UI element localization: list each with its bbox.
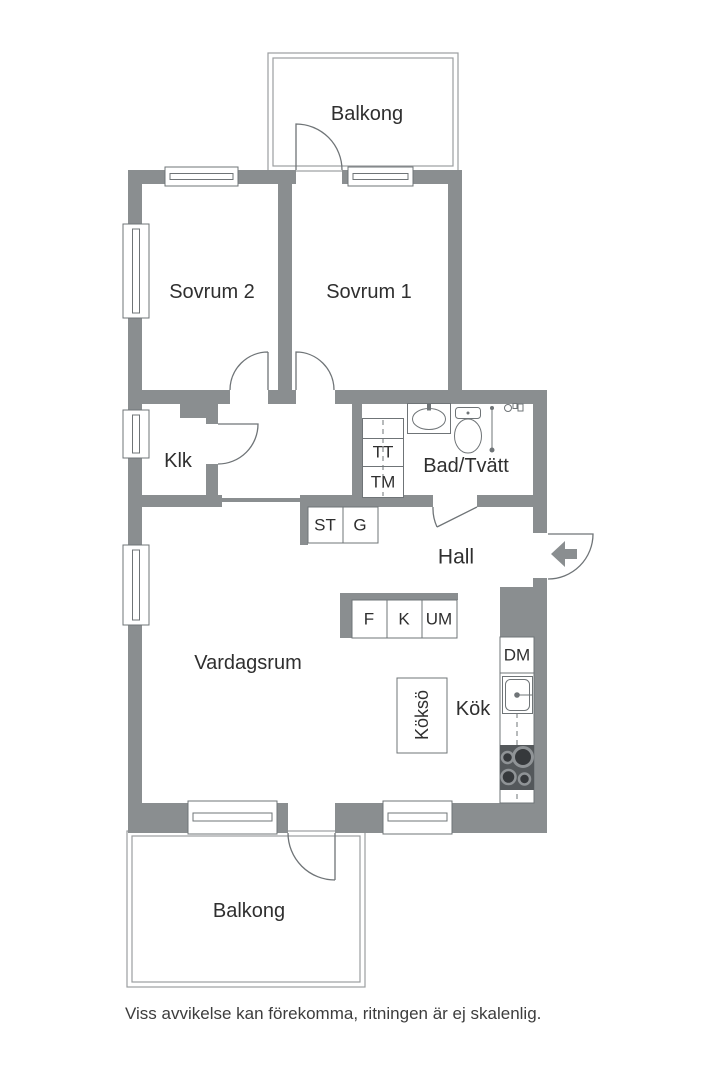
room-label-balkong-top: Balkong	[331, 104, 403, 124]
label-tumble-dryer: TT	[373, 444, 394, 461]
sovrum2-door	[230, 352, 268, 390]
kitchen-sink-icon	[503, 677, 534, 714]
floor-plan-drawing	[0, 0, 720, 1080]
room-label-sovrum-2: Sovrum 2	[169, 282, 255, 302]
window-klk-left	[123, 410, 149, 458]
room-label-klk: Klk	[164, 451, 192, 471]
room-label-kok: Kök	[456, 699, 490, 719]
mixer-icon	[505, 404, 524, 412]
passage-threshold	[222, 498, 300, 502]
room-label-balkong-bottom: Balkong	[213, 901, 285, 921]
room-label-vardagsrum: Vardagsrum	[194, 653, 301, 673]
label-fridge: F	[364, 611, 374, 628]
entrance-arrow-icon	[551, 541, 577, 567]
floor-plan-page: Balkong Sovrum 2 Sovrum 1 Klk Bad/Tvätt …	[0, 0, 720, 1080]
toilet-icon	[455, 408, 482, 454]
bathroom-fixtures	[408, 404, 524, 454]
room-label-sovrum-1: Sovrum 1	[326, 282, 412, 302]
window-vardagsrum-bottom	[188, 801, 277, 834]
label-dishwasher: DM	[504, 647, 530, 664]
disclaimer-text: Viss avvikelse kan förekomma, ritningen …	[125, 1004, 541, 1024]
bathroom-door	[433, 507, 477, 527]
shower-icon	[490, 406, 495, 453]
window-sovrum1-top	[348, 167, 413, 186]
walls	[128, 170, 547, 833]
window-vardagsrum-left	[123, 545, 149, 625]
sink-icon	[408, 404, 451, 434]
label-washing-machine: TM	[371, 474, 396, 491]
label-freezer: K	[398, 611, 409, 628]
window-kok-bottom	[383, 801, 452, 834]
room-label-hall: Hall	[438, 547, 474, 568]
window-sovrum2-top	[165, 167, 238, 186]
sovrum1-door	[296, 352, 334, 390]
label-cleaning-closet: ST	[314, 517, 336, 534]
window-sovrum2-left	[123, 224, 149, 318]
room-label-bad-tvatt: Bad/Tvätt	[423, 456, 509, 476]
label-wardrobe: G	[353, 517, 366, 534]
klk-door	[218, 424, 258, 464]
label-microwave-oven: UM	[426, 611, 452, 628]
stove-icon	[500, 745, 534, 790]
label-koks-island: Köksö	[413, 690, 431, 740]
